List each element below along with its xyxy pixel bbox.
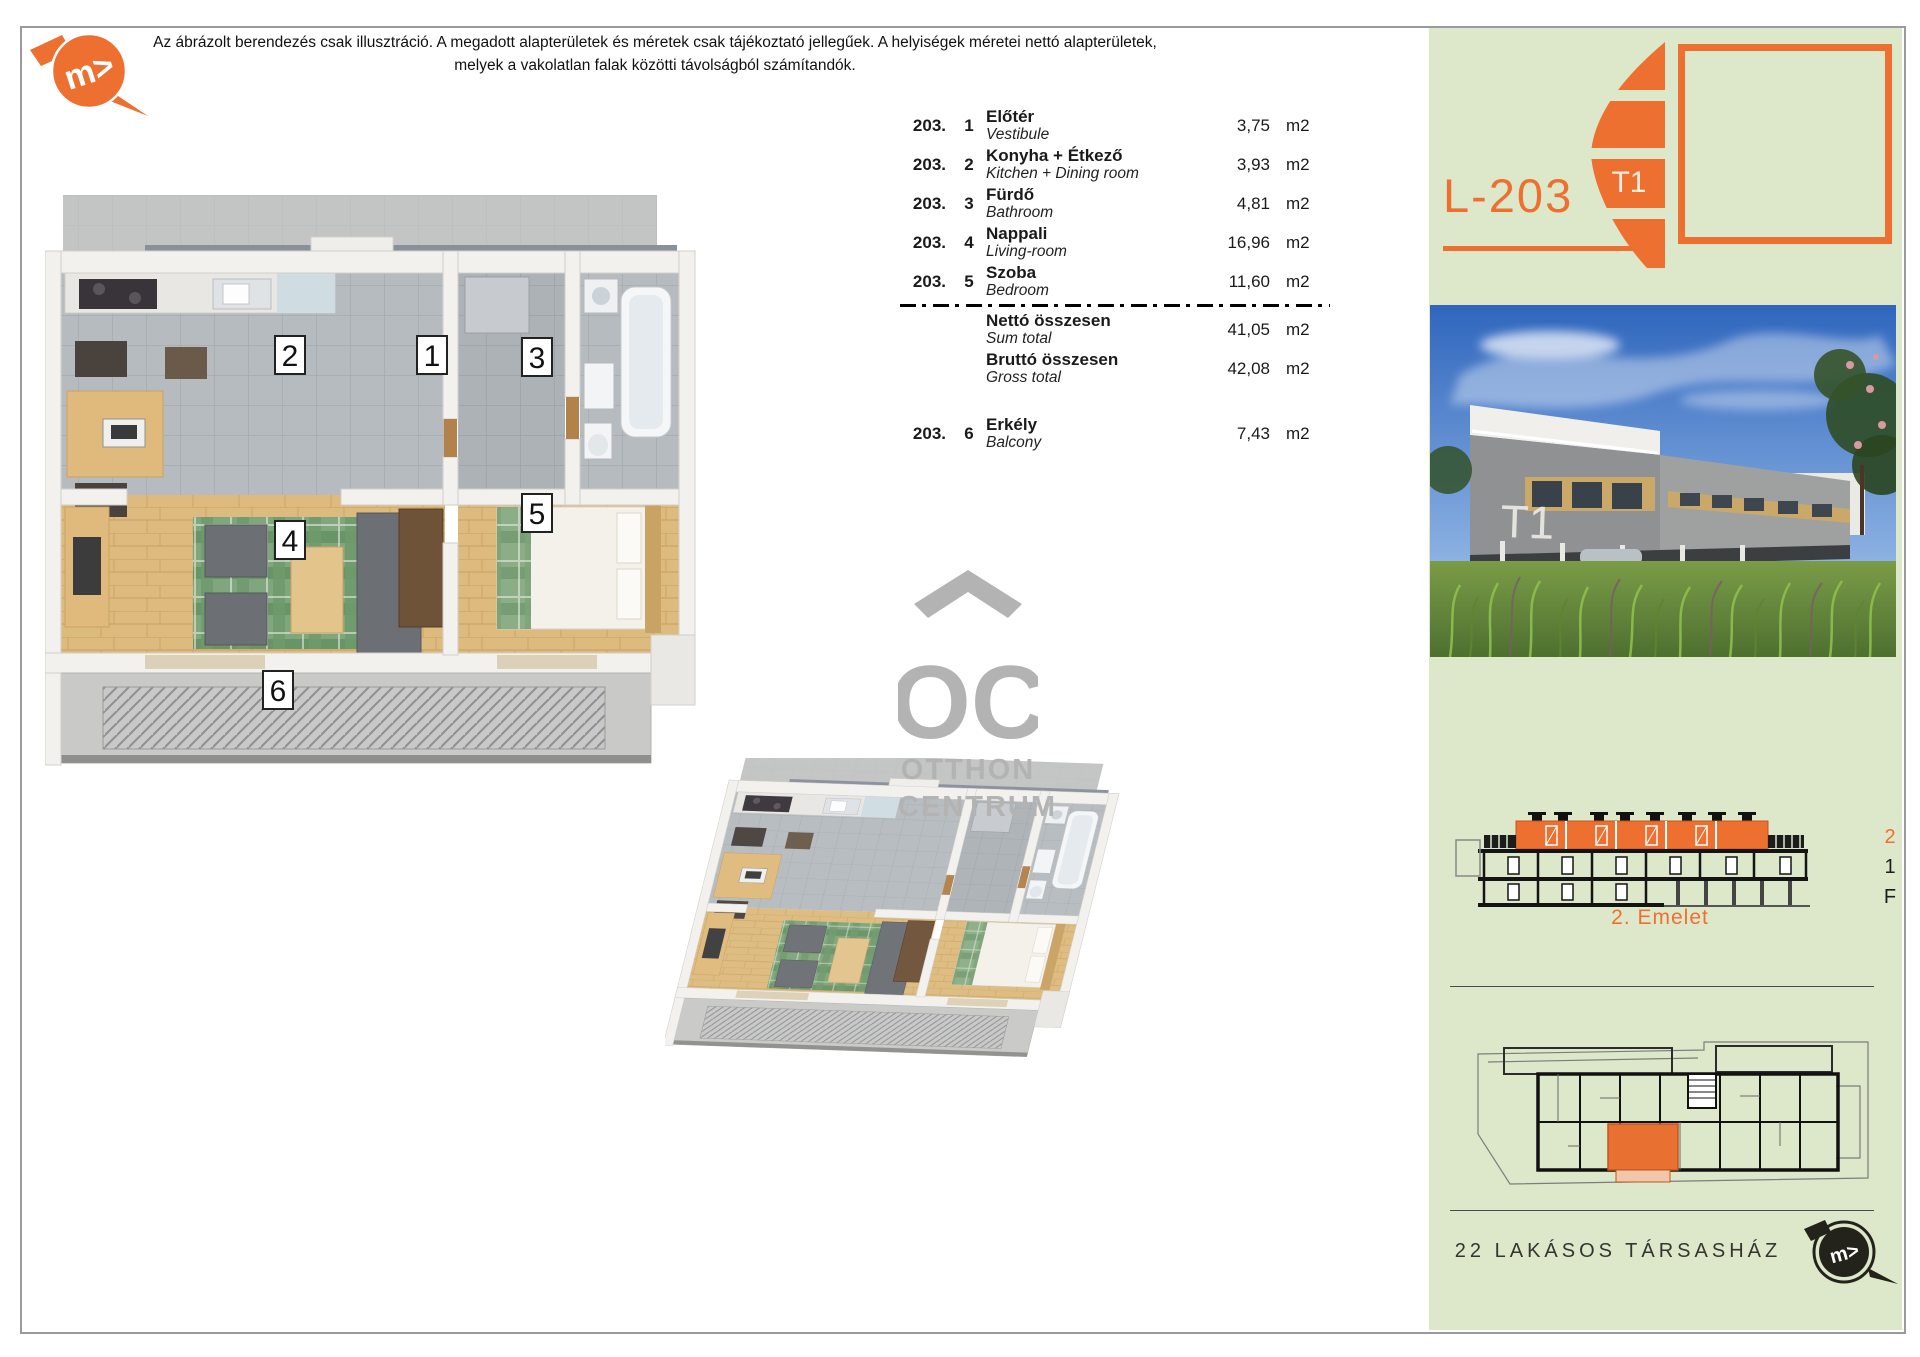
row-index: 1 xyxy=(952,116,986,136)
room-area: 4,81 xyxy=(1200,194,1270,214)
area-unit: m2 xyxy=(1270,272,1318,292)
room-area: 7,43 xyxy=(1200,424,1270,444)
row-unit-number: 203. xyxy=(900,155,952,175)
total-area: 41,05 xyxy=(1200,320,1270,340)
room-area: 3,75 xyxy=(1200,116,1270,136)
row-unit-number: 203. xyxy=(900,233,952,253)
agency-logo-icon: m> xyxy=(26,26,148,120)
row-index: 6 xyxy=(952,424,986,444)
stair-core xyxy=(1688,1074,1716,1108)
room-area: 16,96 xyxy=(1200,233,1270,253)
room-label-3: 3 xyxy=(529,342,546,375)
otthon-centrum-logo: OC OTTHON CENTRUM xyxy=(898,556,1038,826)
area-unit: m2 xyxy=(1270,424,1318,444)
table-row: 203. 5 SzobaBedroom 11,60 m2 xyxy=(900,262,1330,301)
oc-roof-chevron xyxy=(914,570,1022,618)
floor-label-2: 2 xyxy=(1878,822,1902,852)
building-leaf-badge: T1 xyxy=(1577,40,1672,270)
badge-label: T1 xyxy=(1611,166,1646,199)
area-unit: m2 xyxy=(1270,320,1318,340)
balcony-row: 203. 6 ErkélyBalcony 7,43 m2 xyxy=(900,414,1330,453)
total-name-en: Sum total xyxy=(986,330,1200,347)
room-name-hu: Nappali xyxy=(986,224,1200,243)
highlighted-unit xyxy=(1608,1124,1678,1170)
room-name-hu: Előtér xyxy=(986,107,1200,126)
sidebar-divider-top xyxy=(1450,986,1874,987)
sidebar-divider-bottom xyxy=(1450,1210,1874,1211)
room-table: 203. 1 ElőtérVestibule 3,75 m2 203. 2 Ko… xyxy=(900,106,1330,453)
oc-letters: OC xyxy=(898,645,1038,752)
room-area: 3,93 xyxy=(1200,155,1270,175)
oc-monogram-icon: OC xyxy=(898,556,1038,752)
room-label-1: 1 xyxy=(424,340,441,373)
row-unit-number: 203. xyxy=(900,116,952,136)
total-name-hu: Bruttó összesen xyxy=(986,350,1200,369)
area-unit: m2 xyxy=(1270,155,1318,175)
net-total-row: Nettó összesenSum total 41,05 m2 xyxy=(900,310,1330,349)
room-name-hu: Konyha + Étkező xyxy=(986,146,1200,165)
unit-code: L-203 xyxy=(1443,168,1573,223)
row-unit-number: 203. xyxy=(900,424,952,444)
main-floorplan: 1 2 3 4 5 6 xyxy=(45,195,710,780)
oc-word-otthon: OTTHON xyxy=(898,752,1038,789)
room-name-hu: Fürdő xyxy=(986,185,1200,204)
disclaimer-line1: Az ábrázolt berendezés csak illusztráció… xyxy=(153,34,1157,51)
floor-label-ground: F xyxy=(1878,882,1902,912)
room-label-6: 6 xyxy=(270,675,287,708)
row-index: 4 xyxy=(952,233,986,253)
table-row: 203. 4 NappaliLiving-room 16,96 m2 xyxy=(900,223,1330,262)
room-name-en: Bedroom xyxy=(986,282,1200,299)
site-outline-square xyxy=(1678,44,1892,244)
total-name-en: Gross total xyxy=(986,369,1200,386)
area-unit: m2 xyxy=(1270,359,1318,379)
area-unit: m2 xyxy=(1270,233,1318,253)
table-row: 203. 3 FürdőBathroom 4,81 m2 xyxy=(900,184,1330,223)
section-floor-labels: 2 1 F xyxy=(1878,822,1902,912)
agency-logo-dark-icon: m> xyxy=(1798,1216,1898,1288)
grass xyxy=(1430,561,1896,657)
logo-tail-shape xyxy=(1868,1268,1898,1284)
oc-word-centrum: CENTRUM xyxy=(898,789,1038,826)
section-diagram xyxy=(1450,812,1870,912)
row-index: 2 xyxy=(952,155,986,175)
brochure-page: { "disclaimer": { "line1": "Az ábrázolt … xyxy=(0,0,1920,1357)
floorplan-drawing xyxy=(45,195,695,765)
table-row: 203. 2 Konyha + ÉtkezőKitchen + Dining r… xyxy=(900,145,1330,184)
section-caption: 2. Emelet xyxy=(1450,906,1870,930)
area-unit: m2 xyxy=(1270,194,1318,214)
row-unit-number: 203. xyxy=(900,194,952,214)
room-name-en: Living-room xyxy=(986,243,1200,260)
keyplan-diagram xyxy=(1448,1012,1892,1198)
room-name-en: Bathroom xyxy=(986,204,1200,221)
floor-label-1: 1 xyxy=(1878,852,1902,882)
total-area: 42,08 xyxy=(1200,359,1270,379)
room-label-5: 5 xyxy=(529,498,546,531)
building-photo: T1 xyxy=(1430,305,1896,657)
room-name-hu: Szoba xyxy=(986,263,1200,282)
room-label-2: 2 xyxy=(282,340,299,373)
photo-building-label: T1 xyxy=(1500,495,1555,549)
building-name: 22 LAKÁSOS TÁRSASHÁZ xyxy=(1448,1240,1788,1263)
room-name-en: Kitchen + Dining room xyxy=(986,165,1200,182)
table-row: 203. 1 ElőtérVestibule 3,75 m2 xyxy=(900,106,1330,145)
disclaimer-line2: melyek a vakolatlan falak közötti távols… xyxy=(454,57,856,74)
area-unit: m2 xyxy=(1270,116,1318,136)
totals-separator xyxy=(900,304,1330,307)
highlighted-unit-balcony xyxy=(1616,1170,1670,1182)
section-drawing xyxy=(1456,812,1810,907)
room-name-en: Vestibule xyxy=(986,126,1200,143)
total-name-hu: Nettó összesen xyxy=(986,311,1200,330)
row-index: 3 xyxy=(952,194,986,214)
room-name-en: Balcony xyxy=(986,434,1200,451)
room-label-4: 4 xyxy=(282,525,299,558)
row-unit-number: 203. xyxy=(900,272,952,292)
row-index: 5 xyxy=(952,272,986,292)
disclaimer-text: Az ábrázolt berendezés csak illusztráció… xyxy=(150,31,1160,78)
gross-total-row: Bruttó összesenGross total 42,08 m2 xyxy=(900,349,1330,388)
room-area: 11,60 xyxy=(1200,272,1270,292)
room-name-hu: Erkély xyxy=(986,415,1200,434)
